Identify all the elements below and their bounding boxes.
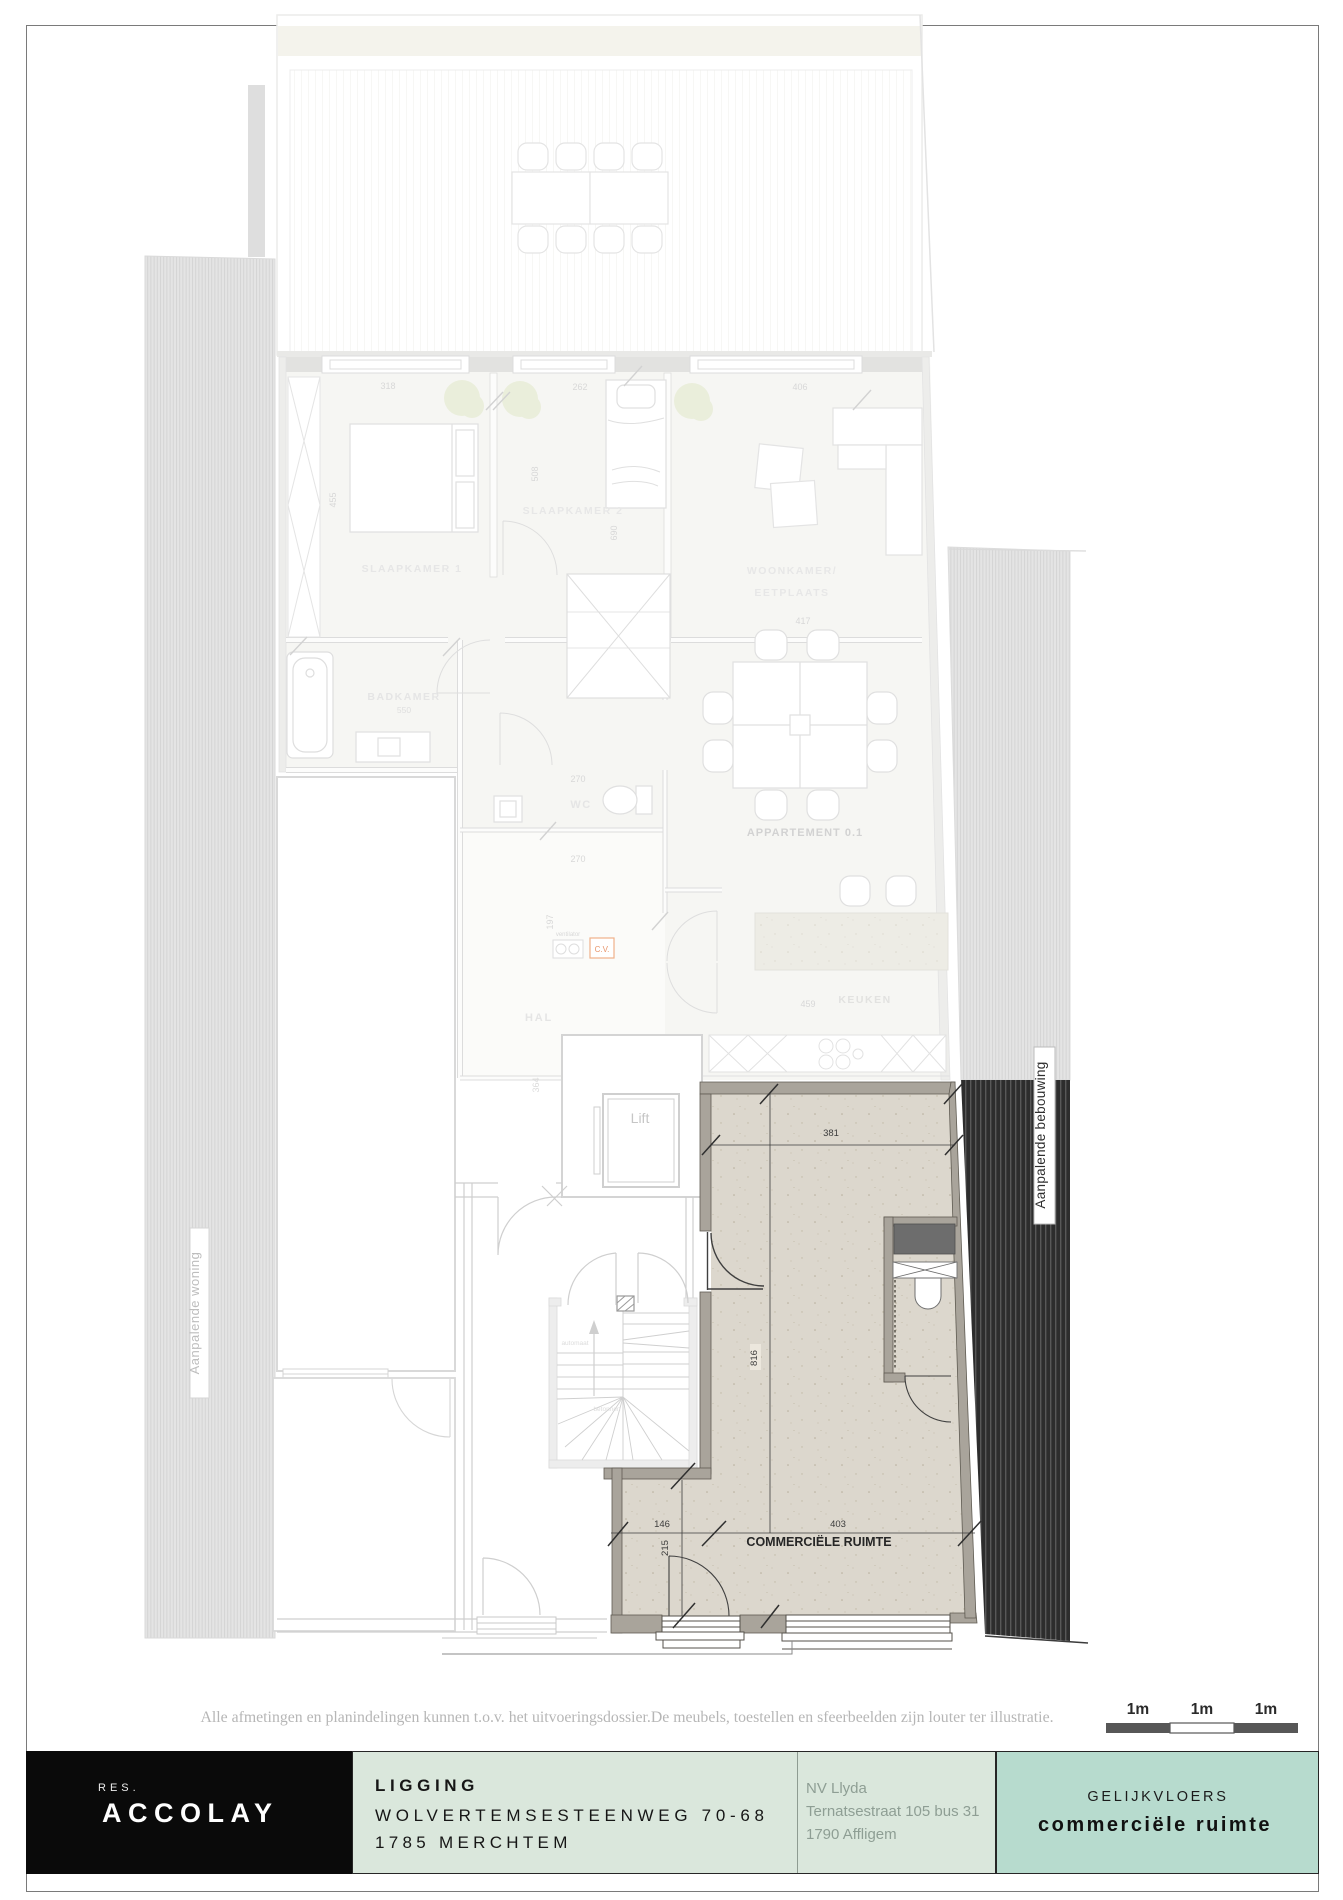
- svg-text:BADKAMER: BADKAMER: [367, 691, 440, 703]
- svg-text:403: 403: [830, 1519, 846, 1530]
- svg-text:RES.: RES.: [98, 1782, 140, 1794]
- svg-text:417: 417: [795, 616, 810, 626]
- svg-text:Alle afmetingen en planindelin: Alle afmetingen en planindelingen kunnen…: [200, 1709, 1053, 1726]
- svg-text:455: 455: [328, 492, 338, 507]
- svg-text:HAL: HAL: [525, 1012, 553, 1024]
- svg-text:ventilator: ventilator: [556, 932, 580, 938]
- svg-text:COMMERCIËLE RUIMTE: COMMERCIËLE RUIMTE: [746, 1534, 891, 1549]
- svg-text:146: 146: [654, 1519, 670, 1530]
- svg-text:550: 550: [397, 705, 411, 715]
- svg-text:betonnen: betonnen: [593, 1406, 620, 1413]
- svg-text:197: 197: [545, 914, 555, 929]
- svg-text:1m: 1m: [1191, 1701, 1213, 1718]
- svg-text:LIGGING: LIGGING: [375, 1776, 479, 1795]
- svg-text:C.V.: C.V.: [595, 945, 610, 954]
- svg-text:APPARTEMENT 0.1: APPARTEMENT 0.1: [747, 827, 863, 839]
- svg-text:364: 364: [531, 1077, 541, 1092]
- svg-text:NV Llyda: NV Llyda: [806, 1780, 868, 1797]
- svg-text:215: 215: [660, 1540, 671, 1556]
- svg-text:WOLVERTEMSESTEENWEG 70-68: WOLVERTEMSESTEENWEG 70-68: [375, 1806, 769, 1825]
- svg-text:318: 318: [380, 381, 395, 391]
- svg-text:406: 406: [792, 382, 807, 392]
- svg-text:270: 270: [570, 774, 585, 784]
- svg-text:1m: 1m: [1127, 1701, 1149, 1718]
- svg-text:SLAAPKAMER 2: SLAAPKAMER 2: [523, 505, 624, 517]
- svg-text:automaat: automaat: [561, 1340, 588, 1347]
- svg-text:Aanpalende bebouwing: Aanpalende bebouwing: [1033, 1061, 1048, 1208]
- svg-text:KEUKEN: KEUKEN: [838, 994, 891, 1006]
- svg-text:1785 MERCHTEM: 1785 MERCHTEM: [375, 1833, 572, 1852]
- svg-text:WOONKAMER/: WOONKAMER/: [747, 565, 837, 577]
- svg-text:1790 Affligem: 1790 Affligem: [806, 1826, 897, 1843]
- svg-text:1m: 1m: [1255, 1701, 1277, 1718]
- svg-text:Aanpalende woning: Aanpalende woning: [187, 1252, 202, 1375]
- svg-text:270: 270: [570, 854, 585, 864]
- svg-text:Lift: Lift: [631, 1110, 650, 1126]
- svg-text:commerciële ruimte: commerciële ruimte: [1038, 1814, 1272, 1836]
- svg-text:GELIJKVLOERS: GELIJKVLOERS: [1087, 1789, 1228, 1805]
- svg-text:690: 690: [609, 525, 619, 540]
- svg-text:262: 262: [572, 382, 587, 392]
- svg-text:816: 816: [749, 1350, 760, 1366]
- svg-text:Ternatsestraat 105 bus 31: Ternatsestraat 105 bus 31: [806, 1803, 979, 1820]
- svg-text:508: 508: [530, 466, 540, 481]
- svg-text:381: 381: [823, 1128, 839, 1139]
- svg-text:EETPLAATS: EETPLAATS: [754, 587, 829, 599]
- svg-text:459: 459: [800, 999, 815, 1009]
- svg-text:WC: WC: [570, 799, 591, 811]
- svg-text:ACCOLAY: ACCOLAY: [102, 1798, 279, 1828]
- svg-text:SLAAPKAMER 1: SLAAPKAMER 1: [362, 563, 463, 575]
